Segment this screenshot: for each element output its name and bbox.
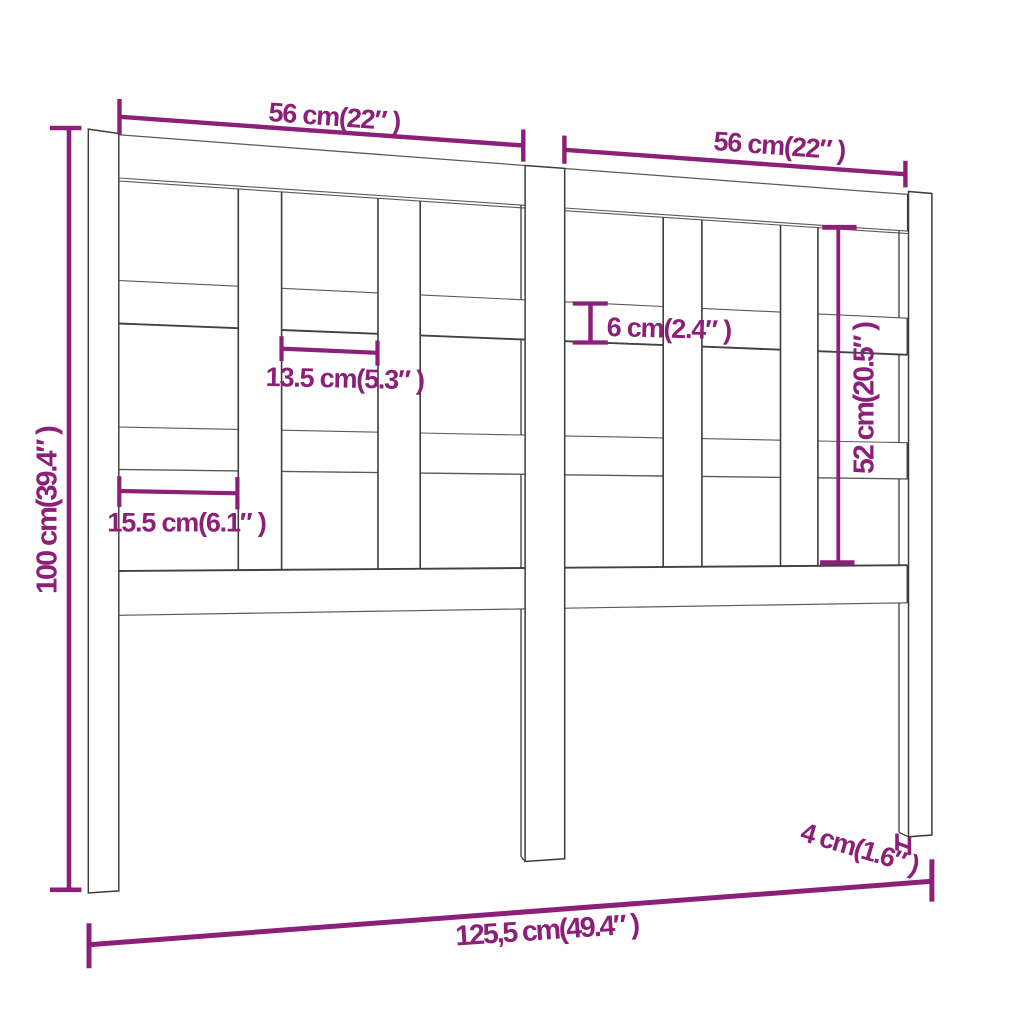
svg-text:6 cm(2.4″ ): 6 cm(2.4″ ): [606, 312, 731, 345]
svg-text:52 cm(20.5″ ): 52 cm(20.5″ ): [849, 322, 881, 474]
svg-text:15.5 cm(6.1″ ): 15.5 cm(6.1″ ): [107, 508, 265, 538]
svg-text:13.5 cm(5.3″ ): 13.5 cm(5.3″ ): [265, 362, 424, 395]
svg-text:100 cm(39.4″ ): 100 cm(39.4″ ): [32, 426, 64, 594]
